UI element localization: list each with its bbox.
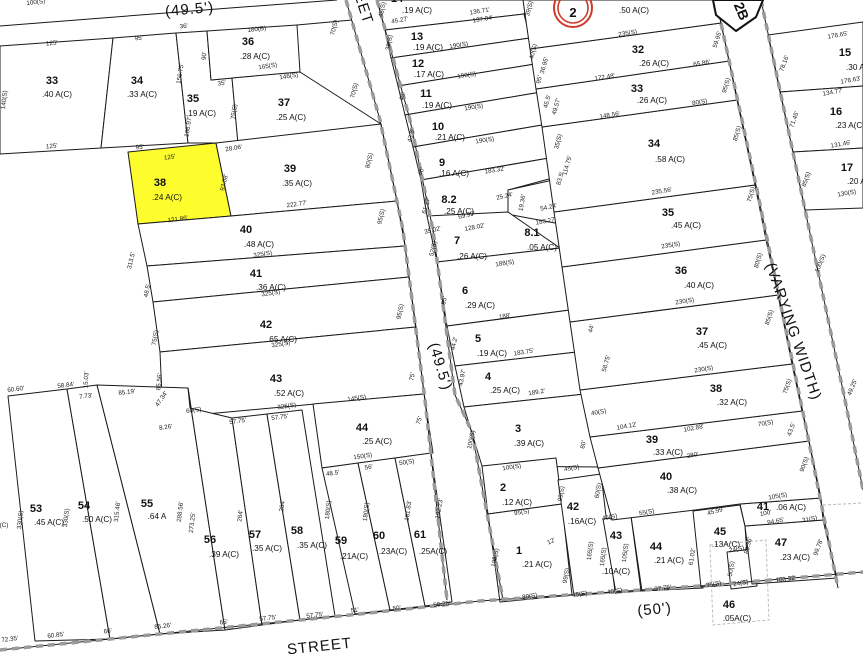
dimension-label: 264' bbox=[236, 510, 244, 522]
lot-number-42: 42 bbox=[260, 319, 272, 331]
dimension-label: 125' bbox=[46, 142, 58, 150]
lot-number-38: 38 bbox=[154, 177, 166, 189]
lot-acreage-60: .23A(C) bbox=[379, 547, 407, 556]
lot-38-parcel-5[interactable] bbox=[128, 143, 231, 224]
lot-number-2: 2 bbox=[500, 482, 506, 494]
lot-number-38: 38 bbox=[710, 383, 722, 395]
lot-number-10: 10 bbox=[432, 121, 444, 133]
lot-number-44: 44 bbox=[356, 422, 369, 434]
lot-acreage-5: .19 A(C) bbox=[477, 349, 507, 358]
lot-number-32: 32 bbox=[632, 44, 644, 56]
lot-acreage-56: .39 A(C) bbox=[209, 550, 239, 559]
lot-number-57: 57 bbox=[249, 529, 261, 541]
dimension-label: 36' bbox=[179, 23, 188, 31]
lot-acreage-32: .26 A(C) bbox=[639, 59, 669, 68]
lot-acreage-38: .32 A(C) bbox=[717, 398, 747, 407]
lot-number-9: 9 bbox=[439, 157, 445, 169]
lot-number-6: 6 bbox=[462, 285, 468, 297]
dimension-label: 51' bbox=[350, 607, 359, 615]
lot-number-56: 56 bbox=[204, 534, 216, 546]
street-name-label: (50') bbox=[636, 599, 672, 620]
lot-acreage-41: .06 A(C) bbox=[776, 503, 806, 512]
lot-acreage-61: .25A(C) bbox=[419, 547, 447, 556]
lot-acreage-37: .25 A(C) bbox=[276, 113, 306, 122]
lot-number-3: 3 bbox=[515, 423, 521, 435]
dimension-label: 90' bbox=[201, 52, 209, 61]
lot-acreage-53: .45 A(C) bbox=[34, 518, 64, 527]
lot-acreage-36: .28 A(C) bbox=[240, 52, 270, 61]
lot-acreage-54: .50 A(C) bbox=[82, 515, 112, 524]
lot-acreage-44: .21 A(C) bbox=[654, 556, 684, 565]
lot-acreage-43: .10A(C) bbox=[602, 567, 630, 576]
lot-acreage-37: .45 A(C) bbox=[697, 341, 727, 350]
lot-number-37: 37 bbox=[278, 97, 290, 109]
lot-acreage-unnumbered: .50 A(C) bbox=[619, 6, 649, 15]
lot-acreage-43: .52 A(C) bbox=[274, 389, 304, 398]
lot-acreage-34: .33 A(C) bbox=[127, 90, 157, 99]
lot-number-8.1: 8.1 bbox=[524, 227, 539, 239]
lot-acreage-11: .19 A(C) bbox=[422, 101, 452, 110]
lot-acreage-14: .19 A(C) bbox=[402, 6, 432, 15]
lot-acreage-10: .21 A(C) bbox=[435, 133, 465, 142]
dimension-label: 56' bbox=[364, 463, 373, 471]
lot-number-43: 43 bbox=[610, 530, 622, 542]
lot-acreage-33: .40 A(C) bbox=[42, 90, 72, 99]
lot-acreage-2: .12 A(C) bbox=[502, 498, 532, 507]
lot-acreage-42: .16A(C) bbox=[568, 517, 596, 526]
lot-acreage-57: .35 A(C) bbox=[252, 544, 282, 553]
lot-number-41: 41 bbox=[757, 501, 769, 513]
lot-acreage-8.1: .05 A(C) bbox=[527, 243, 557, 252]
lot-number-36: 36 bbox=[675, 265, 687, 277]
lot-3-parcel-33[interactable] bbox=[464, 394, 601, 467]
lot-acreage-1: .21 A(C) bbox=[522, 560, 552, 569]
lot-number-34: 34 bbox=[648, 138, 661, 150]
lot-number-33: 33 bbox=[46, 75, 58, 87]
lot-acreage-7: .26 A(C) bbox=[457, 252, 487, 261]
lot-number-59: 59 bbox=[335, 535, 347, 547]
lot-acreage-41: .36 A(C) bbox=[256, 283, 286, 292]
lot-number-12: 12 bbox=[412, 58, 424, 70]
lot-number-44: 44 bbox=[650, 541, 663, 553]
lot-number-7: 7 bbox=[454, 235, 460, 247]
lot-number-4: 4 bbox=[485, 371, 492, 383]
lot-acreage-35: .45 A(C) bbox=[671, 221, 701, 230]
lot-acreage-47: .23 A(C) bbox=[780, 553, 810, 562]
lot-acreage-34: .58 A(C) bbox=[655, 155, 685, 164]
lot-acreage-12: .17 A(C) bbox=[414, 70, 444, 79]
lot-number-61: 61 bbox=[414, 529, 426, 541]
lot-number-45: 45 bbox=[714, 526, 726, 538]
parcel-map-canvas: 100(S)125'140(S)125'95'156.75'36'35'180(… bbox=[0, 0, 863, 664]
lot-acreage-38: .24 A(C) bbox=[152, 193, 182, 202]
lot-acreage-36: .40 A(C) bbox=[684, 281, 714, 290]
lot-acreage-40: .38 A(C) bbox=[667, 486, 697, 495]
lot-acreage-40: .48 A(C) bbox=[244, 240, 274, 249]
lot-acreage-39: .33 A(C) bbox=[653, 448, 683, 457]
lot-number-55: 55 bbox=[141, 498, 153, 510]
lot-acreage-59: .21A(C) bbox=[340, 552, 368, 561]
lot-number-17: 17 bbox=[841, 162, 853, 174]
dimension-label: 50' bbox=[392, 605, 401, 613]
lot-number-34: 34 bbox=[131, 75, 144, 87]
lot-number-41: 41 bbox=[250, 268, 262, 280]
lot-number-35: 35 bbox=[662, 207, 674, 219]
dimension-label: (C) bbox=[0, 522, 8, 529]
lot-acreage-46: .05A(C) bbox=[723, 614, 751, 623]
lot-acreage-6: .29 A(C) bbox=[465, 301, 495, 310]
lot-number-40: 40 bbox=[660, 471, 672, 483]
lot-acreage-9: .16 A(C) bbox=[439, 169, 469, 178]
lot-number-60: 60 bbox=[373, 530, 385, 542]
dimension-label: 65' bbox=[219, 619, 228, 627]
dimension-label: 125' bbox=[46, 39, 58, 47]
lot-acreage-13: .19 A(C) bbox=[413, 43, 443, 52]
lot-acreage-16: .23 A(C) bbox=[835, 121, 863, 130]
lot-number-5: 5 bbox=[475, 333, 481, 345]
parcel-map: 100(S)125'140(S)125'95'156.75'36'35'180(… bbox=[0, 0, 863, 664]
lot-number-39: 39 bbox=[284, 163, 296, 175]
lot-number-8.2: 8.2 bbox=[441, 194, 456, 206]
dimension-label: 35' bbox=[217, 79, 226, 87]
lot-number-15: 15 bbox=[839, 47, 851, 59]
lot-acreage-45: .13A(C) bbox=[712, 540, 740, 549]
lot-number-35: 35 bbox=[187, 93, 199, 105]
dimension-label: 66' bbox=[103, 628, 112, 636]
lot-acreage-3: .39 A(C) bbox=[514, 439, 544, 448]
lot-number-36: 36 bbox=[242, 36, 254, 48]
lot-number-11: 11 bbox=[420, 88, 432, 100]
dimension-label: 95' bbox=[135, 144, 144, 152]
lot-acreage-35: .19 A(C) bbox=[186, 109, 216, 118]
zone-marker-number: 2 bbox=[569, 5, 576, 20]
lot-number-14: 14 bbox=[391, 0, 404, 5]
dimension-label: 15.03' bbox=[82, 371, 90, 388]
lot-number-46: 46 bbox=[723, 599, 735, 611]
lot-number-1: 1 bbox=[516, 545, 522, 557]
lot-number-42: 42 bbox=[567, 501, 579, 513]
lot-acreage-33: .26 A(C) bbox=[637, 96, 667, 105]
lot-number-54: 54 bbox=[78, 500, 91, 512]
dimension-label: 264' bbox=[278, 500, 286, 512]
lot-acreage-42: .65 A(C) bbox=[267, 335, 297, 344]
dimension-label: 95' bbox=[134, 35, 143, 43]
lot-number-37: 37 bbox=[696, 326, 708, 338]
lot-number-13: 13 bbox=[411, 31, 423, 43]
lot-acreage-55: .64 A bbox=[148, 512, 167, 521]
lot-acreage-58: .35 A(C) bbox=[297, 541, 327, 550]
lot-number-58: 58 bbox=[291, 525, 303, 537]
lot-acreage-17: .20 A(C) bbox=[847, 177, 863, 186]
lot-number-40: 40 bbox=[240, 224, 252, 236]
lot-number-43: 43 bbox=[270, 373, 282, 385]
lot-acreage-15: .30 A(C) bbox=[846, 63, 863, 72]
lot-acreage-8.2: .25 A(C) bbox=[444, 207, 474, 216]
lot-number-16: 16 bbox=[830, 106, 842, 118]
lot-acreage-4: .25 A(C) bbox=[490, 386, 520, 395]
lot-acreage-39: .35 A(C) bbox=[282, 179, 312, 188]
lot-number-33: 33 bbox=[631, 83, 643, 95]
lot-number-39: 39 bbox=[646, 434, 658, 446]
lot-number-47: 47 bbox=[775, 537, 787, 549]
lot-acreage-44: .25 A(C) bbox=[362, 437, 392, 446]
lot-number-53: 53 bbox=[30, 503, 42, 515]
